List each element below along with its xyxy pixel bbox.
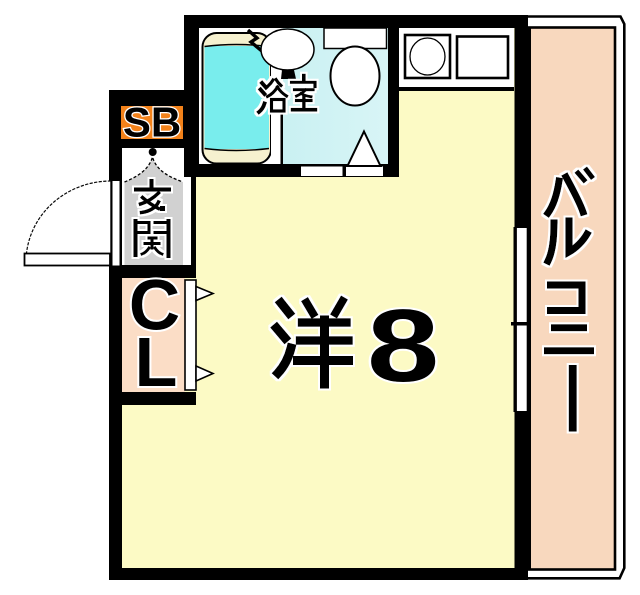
svg-text:SB: SB bbox=[123, 99, 181, 146]
svg-text:L: L bbox=[135, 323, 178, 401]
svg-text:8: 8 bbox=[367, 288, 439, 403]
